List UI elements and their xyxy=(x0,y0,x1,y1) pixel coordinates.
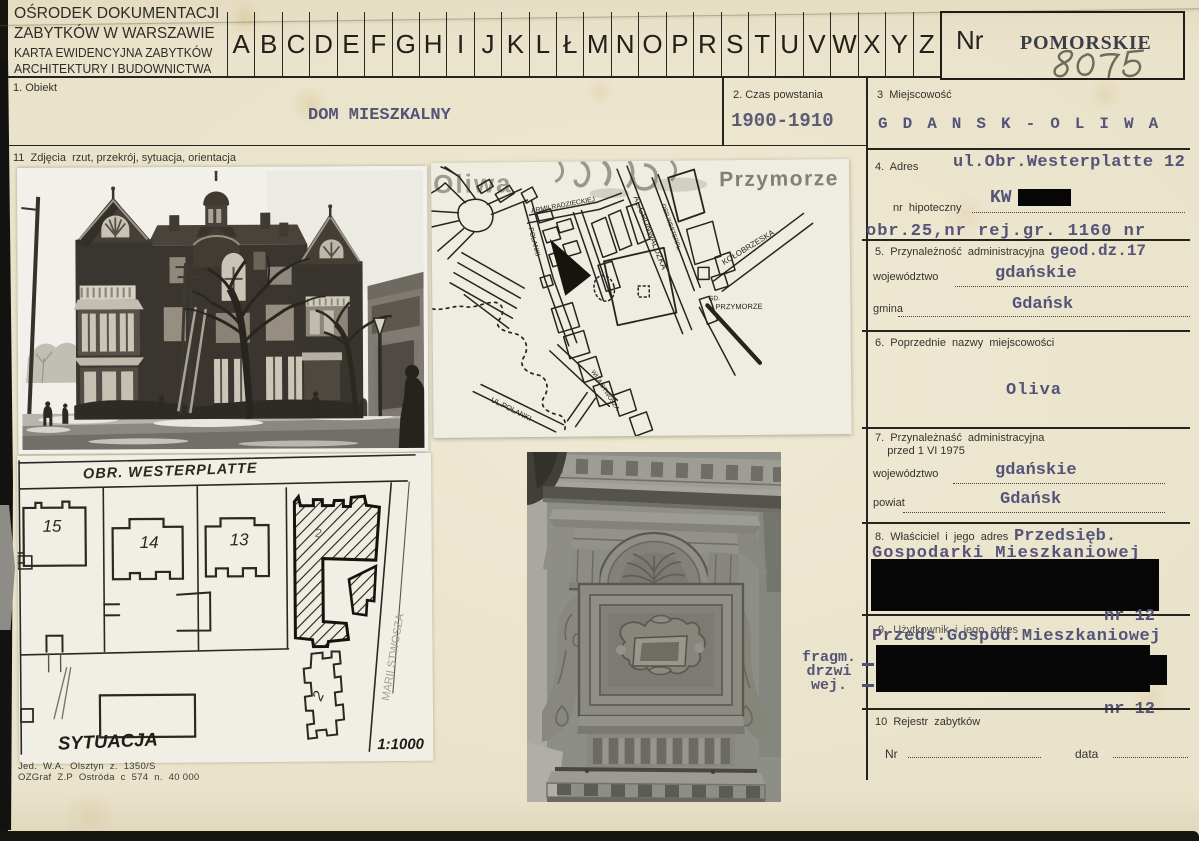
svg-text:SYTUACJA: SYTUACJA xyxy=(58,728,159,753)
svg-text:OBR. WESTERPLATTE: OBR. WESTERPLATTE xyxy=(83,461,258,483)
svg-text:1:1000: 1:1000 xyxy=(377,736,424,753)
svg-text:POLANKI: POLANKI xyxy=(527,227,541,257)
svg-text:14: 14 xyxy=(140,533,159,552)
svg-text:PRZYMORZE: PRZYMORZE xyxy=(715,302,762,311)
svg-text:Przymorze: Przymorze xyxy=(719,167,839,191)
svg-text:2: 2 xyxy=(309,688,329,704)
svg-text:13: 13 xyxy=(230,530,250,549)
svg-text:15: 15 xyxy=(42,517,62,536)
svg-text:MARII STWOSZA: MARII STWOSZA xyxy=(380,612,407,701)
svg-text:KOŁOBRZESKA: KOŁOBRZESKA xyxy=(720,228,776,267)
